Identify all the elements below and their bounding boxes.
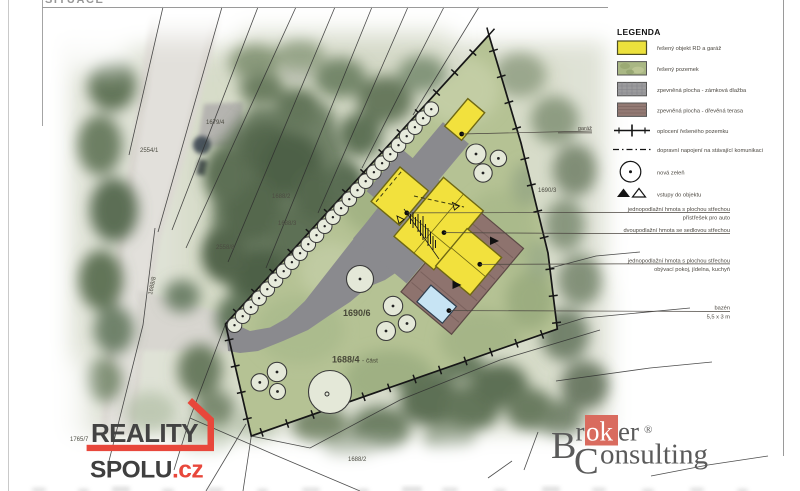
svg-text:Consulting: Consulting <box>574 439 708 483</box>
svg-text:SPOLU: SPOLU <box>90 457 172 484</box>
svg-text:1690/6: 1690/6 <box>343 308 371 318</box>
svg-text:nová zeleň: nová zeleň <box>657 171 685 177</box>
svg-text:jednopodlažní hmota s plochou: jednopodlažní hmota s plochou střechou <box>627 258 730 264</box>
svg-text:2558/8: 2558/8 <box>216 245 235 251</box>
svg-text:bazén: bazén <box>715 306 731 312</box>
svg-text:2554/1: 2554/1 <box>140 148 159 154</box>
svg-text:LEGENDA: LEGENDA <box>617 27 661 37</box>
svg-text:dvoupodlažní hmota se sedlovou: dvoupodlažní hmota se sedlovou střechou <box>623 228 730 234</box>
svg-text:1688/2: 1688/2 <box>272 194 291 200</box>
svg-text:1688/3: 1688/3 <box>278 221 297 227</box>
svg-text:garáž: garáž <box>578 126 592 132</box>
svg-text:SITUACE: SITUACE <box>45 0 104 6</box>
svg-text:oplocení řešeného pozemku: oplocení řešeného pozemku <box>657 129 728 135</box>
svg-text:řešený objekt RD a garáž: řešený objekt RD a garáž <box>657 46 721 52</box>
svg-text:.cz: .cz <box>172 457 203 484</box>
svg-text:1690/3: 1690/3 <box>538 188 557 194</box>
svg-text:jednopodlažní hmota s plochou: jednopodlažní hmota s plochou střechou <box>627 207 730 213</box>
svg-text:přístřešek pro auto: přístřešek pro auto <box>683 216 730 222</box>
svg-text:zpevněná plocha - dřevěná tera: zpevněná plocha - dřevěná terasa <box>657 109 744 115</box>
svg-text:1679/4: 1679/4 <box>206 120 225 126</box>
svg-text:REALITY: REALITY <box>91 418 198 448</box>
svg-text:zpevněná plocha - zámková dlaž: zpevněná plocha - zámková dlažba <box>657 88 747 94</box>
svg-text:obývací pokoj, jídelna, kuchyň: obývací pokoj, jídelna, kuchyň <box>654 267 730 273</box>
svg-text:vstupy do objektu: vstupy do objektu <box>657 193 701 199</box>
svg-text:1688/2: 1688/2 <box>348 457 367 463</box>
svg-text:dopravní napojení na stávající: dopravní napojení na stávající komunikac… <box>657 148 763 154</box>
svg-text:řešený pozemek: řešený pozemek <box>657 67 699 73</box>
svg-text:5,5 x 3 m: 5,5 x 3 m <box>707 314 731 320</box>
